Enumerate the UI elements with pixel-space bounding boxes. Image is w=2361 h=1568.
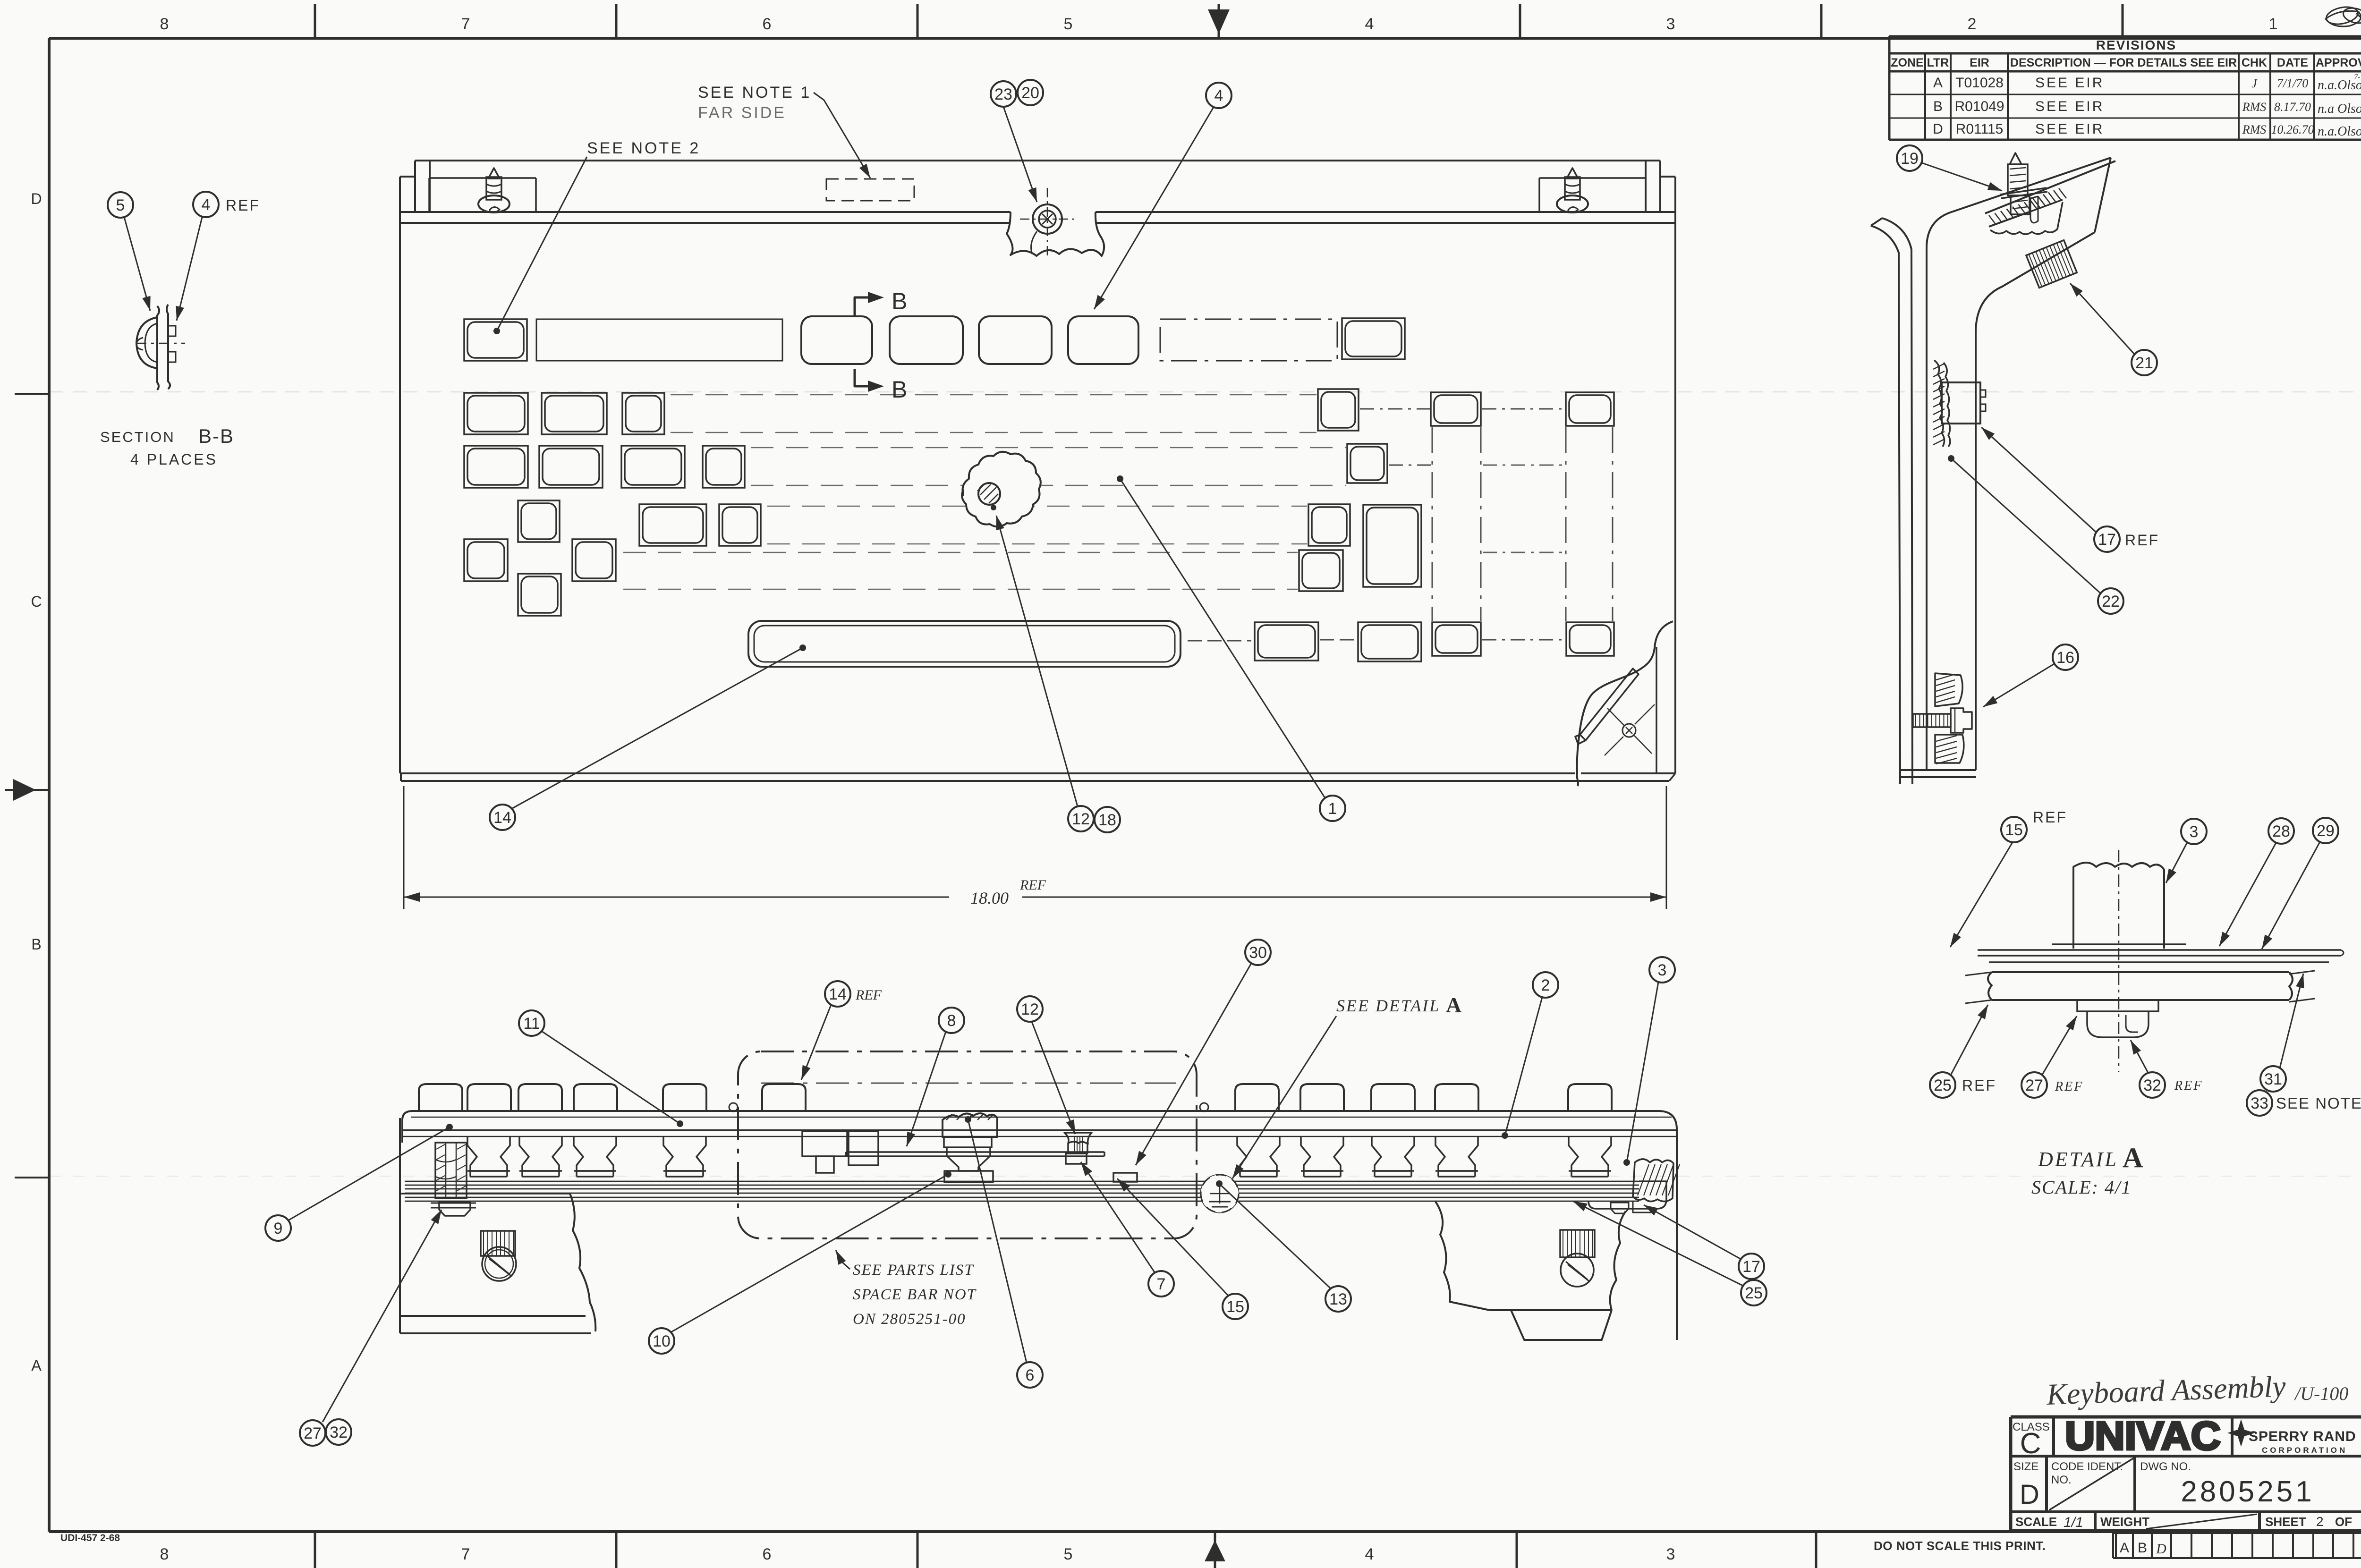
svg-text:DWG NO.: DWG NO. xyxy=(2140,1460,2191,1473)
svg-text:D: D xyxy=(2156,1541,2166,1557)
svg-text:32: 32 xyxy=(2143,1076,2161,1094)
svg-text:REF: REF xyxy=(1019,877,1046,893)
svg-text:7: 7 xyxy=(461,1545,470,1563)
svg-text:25: 25 xyxy=(1934,1076,1952,1094)
svg-text:CHK: CHK xyxy=(2242,56,2267,69)
svg-text:A: A xyxy=(31,1357,42,1374)
svg-text:SEE EIR: SEE EIR xyxy=(2035,75,2104,91)
svg-text:A: A xyxy=(1446,993,1461,1017)
svg-text:19: 19 xyxy=(1901,150,1919,168)
svg-text:RMS: RMS xyxy=(2242,123,2267,136)
svg-text:B: B xyxy=(892,288,907,314)
svg-text:SECTION: SECTION xyxy=(100,429,175,445)
svg-text:17: 17 xyxy=(2098,531,2116,549)
svg-text:16: 16 xyxy=(2056,649,2074,667)
svg-text:14: 14 xyxy=(829,985,847,1003)
svg-text:REF: REF xyxy=(2033,809,2067,826)
svg-text:LTR: LTR xyxy=(1927,56,1949,69)
svg-text:6: 6 xyxy=(1026,1366,1035,1384)
svg-text:REF: REF xyxy=(2055,1079,2083,1094)
svg-text:12: 12 xyxy=(1021,1000,1039,1018)
svg-text:31: 31 xyxy=(2264,1070,2282,1088)
svg-text:11: 11 xyxy=(523,1015,540,1033)
svg-text:n.a.Olson: n.a.Olson xyxy=(2318,124,2361,139)
svg-text:SCALE: 4/1: SCALE: 4/1 xyxy=(2031,1177,2132,1198)
svg-text:B: B xyxy=(31,936,41,953)
svg-text:8: 8 xyxy=(160,1545,169,1563)
svg-text:7-15-70: 7-15-70 xyxy=(2354,73,2361,81)
svg-text:REF: REF xyxy=(2125,532,2159,549)
svg-text:D: D xyxy=(31,190,42,207)
svg-text:R01115: R01115 xyxy=(1956,121,2004,137)
svg-text:7/1/70: 7/1/70 xyxy=(2277,76,2308,90)
svg-text:20: 20 xyxy=(1021,84,1039,102)
svg-text:SEE NOTE 1: SEE NOTE 1 xyxy=(698,84,811,102)
svg-text:ZONE: ZONE xyxy=(1891,56,1923,69)
svg-text:REVISIONS: REVISIONS xyxy=(2096,38,2176,52)
svg-text:9: 9 xyxy=(274,1220,283,1237)
svg-text:32: 32 xyxy=(330,1424,348,1441)
svg-text:3: 3 xyxy=(1658,961,1667,979)
svg-text:DESCRIPTION — FOR DETAILS SEE: DESCRIPTION — FOR DETAILS SEE EIR xyxy=(2010,56,2237,69)
svg-text:UNIVAC: UNIVAC xyxy=(2065,1414,2221,1458)
svg-text:3: 3 xyxy=(2190,823,2199,841)
svg-text:SEE NOTE 2: SEE NOTE 2 xyxy=(587,139,700,157)
svg-text:29: 29 xyxy=(2317,822,2335,840)
svg-text:DO NOT SCALE THIS PRINT.: DO NOT SCALE THIS PRINT. xyxy=(1874,1539,2046,1553)
svg-text:15: 15 xyxy=(1226,1298,1244,1316)
svg-text:OF: OF xyxy=(2335,1515,2352,1529)
svg-text:18: 18 xyxy=(1098,811,1116,829)
svg-text:ON 2805251-00: ON 2805251-00 xyxy=(853,1311,966,1328)
svg-text:B-B: B-B xyxy=(198,425,234,447)
svg-text:4: 4 xyxy=(1365,15,1374,33)
svg-text:SEE EIR: SEE EIR xyxy=(2035,99,2104,114)
svg-text:4: 4 xyxy=(202,196,211,214)
svg-text:5: 5 xyxy=(1064,15,1073,33)
svg-text:2: 2 xyxy=(1968,15,1977,33)
svg-text:33: 33 xyxy=(2251,1094,2268,1112)
svg-text:B: B xyxy=(892,376,907,403)
svg-text:23: 23 xyxy=(994,85,1012,103)
svg-text:B: B xyxy=(2138,1540,2147,1556)
svg-text:SEE NOTE 3: SEE NOTE 3 xyxy=(2276,1094,2361,1112)
svg-text:SEE PARTS LIST: SEE PARTS LIST xyxy=(853,1262,974,1279)
svg-text:10: 10 xyxy=(653,1332,671,1350)
svg-text:1/1: 1/1 xyxy=(2064,1515,2083,1530)
svg-text:J: J xyxy=(2251,76,2258,90)
svg-text:SEE DETAIL: SEE DETAIL xyxy=(1336,996,1440,1015)
svg-text:18.00: 18.00 xyxy=(970,889,1009,907)
svg-text:SHEET: SHEET xyxy=(2265,1515,2306,1529)
svg-text:WEIGHT: WEIGHT xyxy=(2100,1515,2149,1529)
svg-text:25: 25 xyxy=(1745,1284,1763,1302)
svg-text:2805251: 2805251 xyxy=(2181,1475,2314,1508)
svg-text:28: 28 xyxy=(2272,822,2290,840)
svg-text:B: B xyxy=(1933,99,1943,114)
svg-text:14: 14 xyxy=(493,809,511,827)
svg-text:R01049: R01049 xyxy=(1954,99,2004,114)
svg-text:EIR: EIR xyxy=(1970,56,1989,69)
svg-text:6: 6 xyxy=(763,1545,772,1563)
svg-text:7: 7 xyxy=(1157,1275,1166,1293)
svg-text:8: 8 xyxy=(160,15,169,33)
svg-text:5: 5 xyxy=(116,196,125,214)
svg-text:12: 12 xyxy=(1072,810,1090,828)
svg-text:3: 3 xyxy=(1666,1545,1675,1563)
svg-text:REF: REF xyxy=(2174,1078,2203,1093)
svg-text:A: A xyxy=(1933,75,1943,91)
svg-text:27: 27 xyxy=(304,1424,322,1442)
svg-text:4: 4 xyxy=(1214,87,1223,105)
svg-text:3: 3 xyxy=(1666,15,1675,33)
svg-text:T01028: T01028 xyxy=(1955,75,2004,91)
svg-text:17: 17 xyxy=(1742,1258,1760,1276)
svg-text:RMS: RMS xyxy=(2242,100,2267,114)
svg-text:6: 6 xyxy=(763,15,772,33)
svg-text:D: D xyxy=(2020,1479,2039,1510)
svg-text:A: A xyxy=(2120,1540,2129,1556)
svg-text:15: 15 xyxy=(2005,821,2023,839)
svg-text:CORPORATION: CORPORATION xyxy=(2262,1446,2347,1455)
svg-text:13: 13 xyxy=(1329,1290,1347,1308)
svg-text:REF: REF xyxy=(1962,1077,1996,1094)
svg-text:DATE: DATE xyxy=(2277,56,2308,69)
svg-text:SEE EIR: SEE EIR xyxy=(2035,121,2104,137)
svg-text:C: C xyxy=(2020,1427,2041,1460)
svg-text:SIZE: SIZE xyxy=(2013,1460,2038,1473)
svg-text:NO.: NO. xyxy=(2051,1474,2072,1486)
svg-text:DETAIL: DETAIL xyxy=(2038,1148,2118,1171)
svg-text:8: 8 xyxy=(947,1012,956,1030)
svg-text:22: 22 xyxy=(2102,593,2120,610)
svg-text:SPACE BAR NOT: SPACE BAR NOT xyxy=(853,1286,977,1303)
svg-text:21: 21 xyxy=(2135,354,2153,372)
svg-text:27: 27 xyxy=(2025,1076,2043,1094)
svg-text:C: C xyxy=(31,593,42,610)
svg-text:1: 1 xyxy=(1328,800,1337,818)
svg-text:A: A xyxy=(2123,1142,2143,1173)
svg-text:REF: REF xyxy=(855,987,882,1003)
svg-text:APPROVED: APPROVED xyxy=(2316,56,2361,69)
svg-text:D: D xyxy=(1933,121,1943,137)
svg-text:30: 30 xyxy=(1249,944,1267,962)
svg-text:/U-100: /U-100 xyxy=(2294,1383,2348,1404)
svg-text:5: 5 xyxy=(1064,1545,1073,1563)
svg-text:REF: REF xyxy=(226,197,260,214)
svg-text:2: 2 xyxy=(2316,1514,2324,1529)
svg-text:7: 7 xyxy=(461,15,470,33)
svg-text:SPERRY RAND: SPERRY RAND xyxy=(2249,1429,2356,1444)
svg-text:FAR SIDE: FAR SIDE xyxy=(698,104,786,122)
svg-text:4 PLACES: 4 PLACES xyxy=(130,451,218,468)
svg-text:UDI-457 2-68: UDI-457 2-68 xyxy=(60,1533,120,1543)
svg-text:4: 4 xyxy=(1365,1545,1374,1563)
svg-text:10.26.70: 10.26.70 xyxy=(2271,123,2314,136)
svg-text:8.17.70: 8.17.70 xyxy=(2274,100,2311,114)
svg-text:1: 1 xyxy=(2269,15,2278,33)
svg-text:2: 2 xyxy=(1541,976,1550,994)
svg-text:n.a Olson: n.a Olson xyxy=(2318,102,2361,116)
svg-text:SCALE: SCALE xyxy=(2015,1515,2057,1529)
